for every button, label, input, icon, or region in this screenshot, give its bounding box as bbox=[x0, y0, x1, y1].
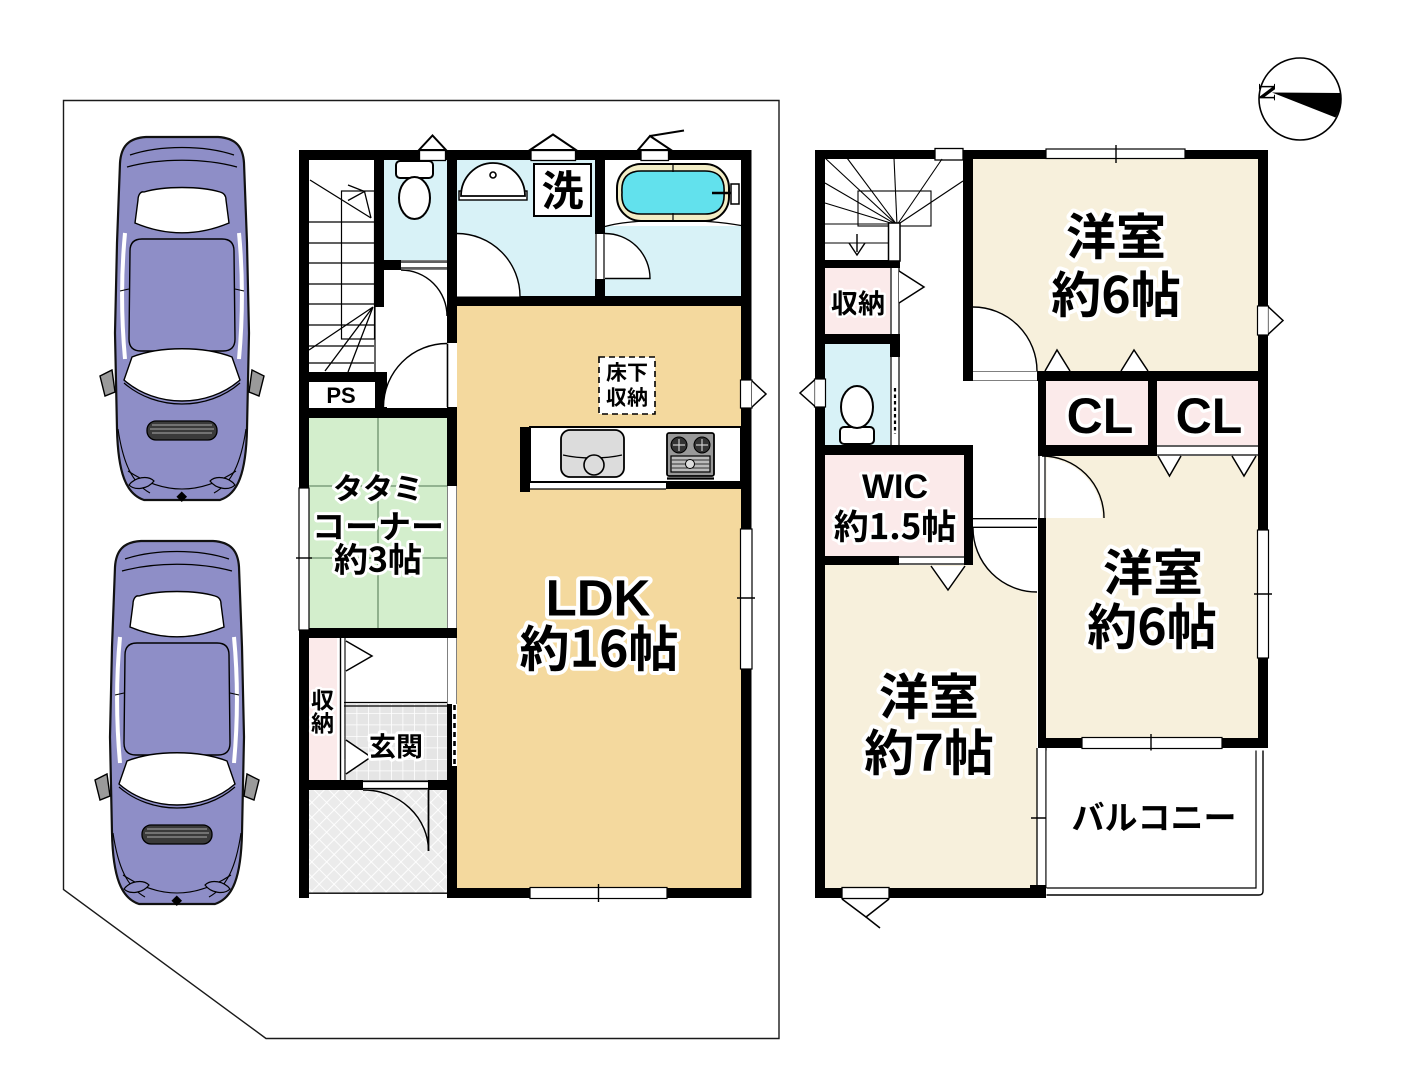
svg-text:PS: PS bbox=[326, 383, 355, 408]
svg-text:WIC: WIC bbox=[862, 468, 928, 506]
svg-text:CL: CL bbox=[1176, 388, 1243, 444]
svg-text:LDK: LDK bbox=[546, 569, 651, 626]
svg-text:CL: CL bbox=[1067, 388, 1134, 444]
svg-text:N: N bbox=[1253, 83, 1279, 101]
